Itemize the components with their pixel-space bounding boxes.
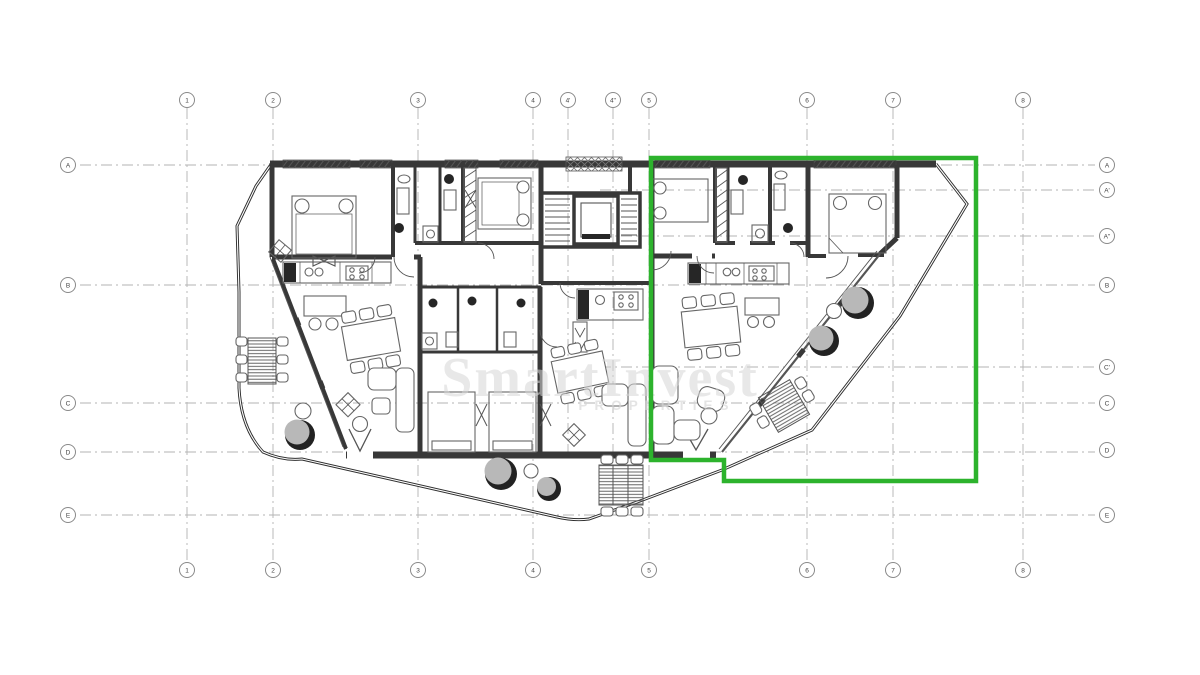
grid-bubble-bottom-2: 2 [266, 563, 281, 578]
svg-text:8: 8 [1021, 567, 1025, 574]
grid-bubble-right-D: D [1100, 443, 1115, 458]
bathroom-fixtures-left [394, 168, 476, 242]
watermark-subtitle: PROPERTIES [578, 398, 735, 413]
svg-text:3: 3 [416, 97, 420, 104]
svg-text:A'': A'' [1104, 233, 1111, 240]
dining-set-left [339, 304, 403, 374]
grid-bubble-top-2: 2 [266, 93, 281, 108]
svg-text:8: 8 [1021, 97, 1025, 104]
door-arcs [359, 243, 848, 347]
grid-bubble-bottom-8: 8 [1016, 563, 1031, 578]
svg-text:C: C [1105, 400, 1110, 407]
grid-bubble-bottom-4: 4 [526, 563, 541, 578]
grid-bubble-top-5: 5 [642, 93, 657, 108]
bed-green-right [829, 194, 886, 253]
floor-plan-image: SmartInvest PROPERTIES 12344'4''56781234… [0, 0, 1200, 675]
svg-text:E: E [1105, 512, 1110, 519]
svg-text:C': C' [1104, 364, 1110, 371]
grid-bubble-top-7: 7 [886, 93, 901, 108]
grid-bubble-top-8: 8 [1016, 93, 1031, 108]
terrace-table [524, 464, 538, 478]
svg-text:1: 1 [185, 97, 189, 104]
svg-text:6: 6 [805, 97, 809, 104]
kitchen-middle [573, 289, 643, 352]
svg-text:C: C [66, 400, 71, 407]
grid-bubble-bottom-6: 6 [800, 563, 815, 578]
tree-icon [809, 326, 840, 357]
svg-text:A: A [66, 162, 71, 169]
tree-icon [285, 420, 316, 451]
entry-canopy [566, 157, 622, 171]
floor-plan-drawing [236, 157, 967, 520]
tree-icon [842, 287, 875, 320]
floor-plan-page: SmartInvest PROPERTIES 12344'4''56781234… [0, 0, 1200, 675]
svg-text:4': 4' [566, 97, 571, 104]
grid-bubble-right-C': C' [1100, 360, 1115, 375]
bed-middle-top [478, 178, 531, 229]
svg-text:D: D [1105, 447, 1110, 454]
svg-text:B: B [66, 282, 70, 289]
svg-text:4'': 4'' [610, 97, 616, 104]
grid-bubble-top-1: 1 [180, 93, 195, 108]
grid-bubble-bottom-3: 3 [411, 563, 426, 578]
svg-text:2: 2 [271, 567, 275, 574]
svg-text:5: 5 [647, 97, 651, 104]
svg-text:E: E [66, 512, 71, 519]
grid-bubble-left-C: C [61, 396, 76, 411]
grid-bubble-top-4': 4' [561, 93, 576, 108]
grid-bubble-top-3: 3 [411, 93, 426, 108]
grid-bubble-bottom-5: 5 [642, 563, 657, 578]
grid-bubble-bottom-1: 1 [180, 563, 195, 578]
grid-bubble-right-A'': A'' [1100, 229, 1115, 244]
kitchen-left [283, 262, 391, 283]
grid-bubble-bottom-7: 7 [886, 563, 901, 578]
svg-text:A': A' [1104, 187, 1110, 194]
svg-text:7: 7 [891, 567, 895, 574]
grid-bubble-top-6: 6 [800, 93, 815, 108]
grid-bubble-left-A: A [61, 158, 76, 173]
bathroom-fixtures-green [716, 168, 793, 242]
svg-text:5: 5 [647, 567, 651, 574]
watermark: SmartInvest PROPERTIES [441, 347, 759, 413]
grid-bubble-left-B: B [61, 278, 76, 293]
outdoor-table-west [236, 337, 288, 384]
grid-bubble-top-4'': 4'' [606, 93, 621, 108]
svg-text:7: 7 [891, 97, 895, 104]
grid-bubble-right-C: C [1100, 396, 1115, 411]
svg-text:D: D [66, 449, 71, 456]
svg-text:A: A [1105, 162, 1110, 169]
svg-text:2: 2 [271, 97, 275, 104]
grid-bubble-top-4: 4 [526, 93, 541, 108]
kitchen-green [688, 263, 789, 284]
svg-text:4: 4 [531, 567, 535, 574]
grid-bubble-left-D: D [61, 445, 76, 460]
bed-green-left [652, 179, 708, 222]
outdoor-table-south [599, 455, 643, 516]
grid-bubble-right-E: E [1100, 508, 1115, 523]
tree-icon [485, 458, 518, 491]
sofa-left [336, 368, 414, 432]
kitchen-island-green [745, 298, 779, 328]
svg-text:6: 6 [805, 567, 809, 574]
bathroom-block [420, 287, 540, 352]
grid-bubble-right-B: B [1100, 278, 1115, 293]
stair-core [541, 157, 640, 247]
svg-text:4: 4 [531, 97, 535, 104]
kitchen-island-left [304, 296, 346, 330]
terrace-table [295, 403, 311, 419]
svg-text:B: B [1105, 282, 1109, 289]
tree-icon [537, 477, 561, 501]
door-v-left [349, 429, 371, 451]
grid-bubble-right-A: A [1100, 158, 1115, 173]
grid-bubble-right-A': A' [1100, 183, 1115, 198]
svg-text:1: 1 [185, 567, 189, 574]
svg-text:3: 3 [416, 567, 420, 574]
terrace-table [827, 304, 842, 319]
grid-bubble-left-E: E [61, 508, 76, 523]
